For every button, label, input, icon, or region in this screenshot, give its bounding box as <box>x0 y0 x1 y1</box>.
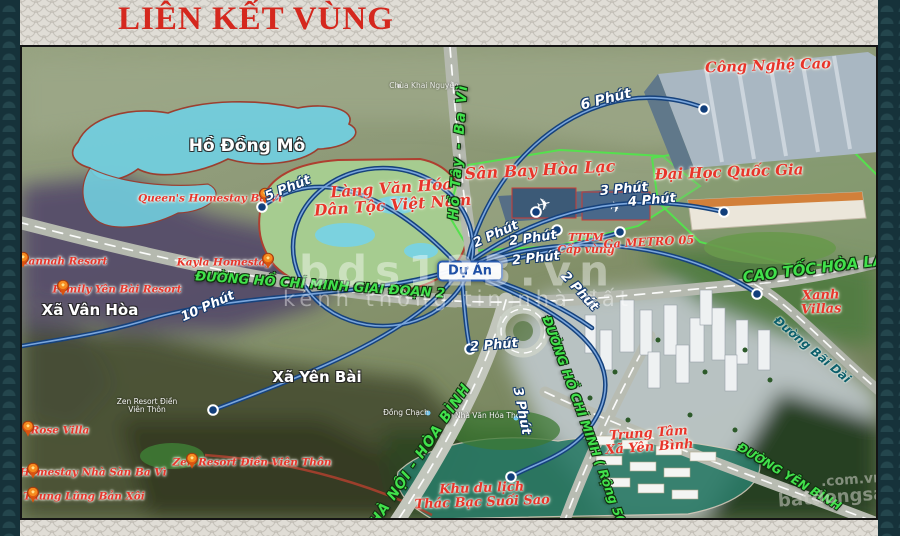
footer-band <box>20 520 878 536</box>
map-pin-icon <box>259 188 271 205</box>
map-pin-icon <box>27 463 39 480</box>
map-pin-icon <box>20 252 29 269</box>
map-pin-icon <box>57 280 69 297</box>
header-band: LIÊN KẾT VÙNG <box>20 0 878 45</box>
project-label-box: Dự Án <box>437 261 503 282</box>
map-svg-layer: ✈ ✈ <box>20 45 878 520</box>
map-pin-icon <box>27 487 39 504</box>
decorative-border-left <box>0 0 20 536</box>
map-pin-icon <box>186 453 198 470</box>
page-title: LIÊN KẾT VÙNG <box>118 1 394 38</box>
map-pin-icon <box>262 253 274 270</box>
infographic-lien-ket-vung: LIÊN KẾT VÙNG <box>0 0 900 536</box>
map-pin-icon <box>22 421 34 438</box>
region-map: ✈ ✈ <box>20 45 878 520</box>
decorative-border-right <box>878 0 900 536</box>
